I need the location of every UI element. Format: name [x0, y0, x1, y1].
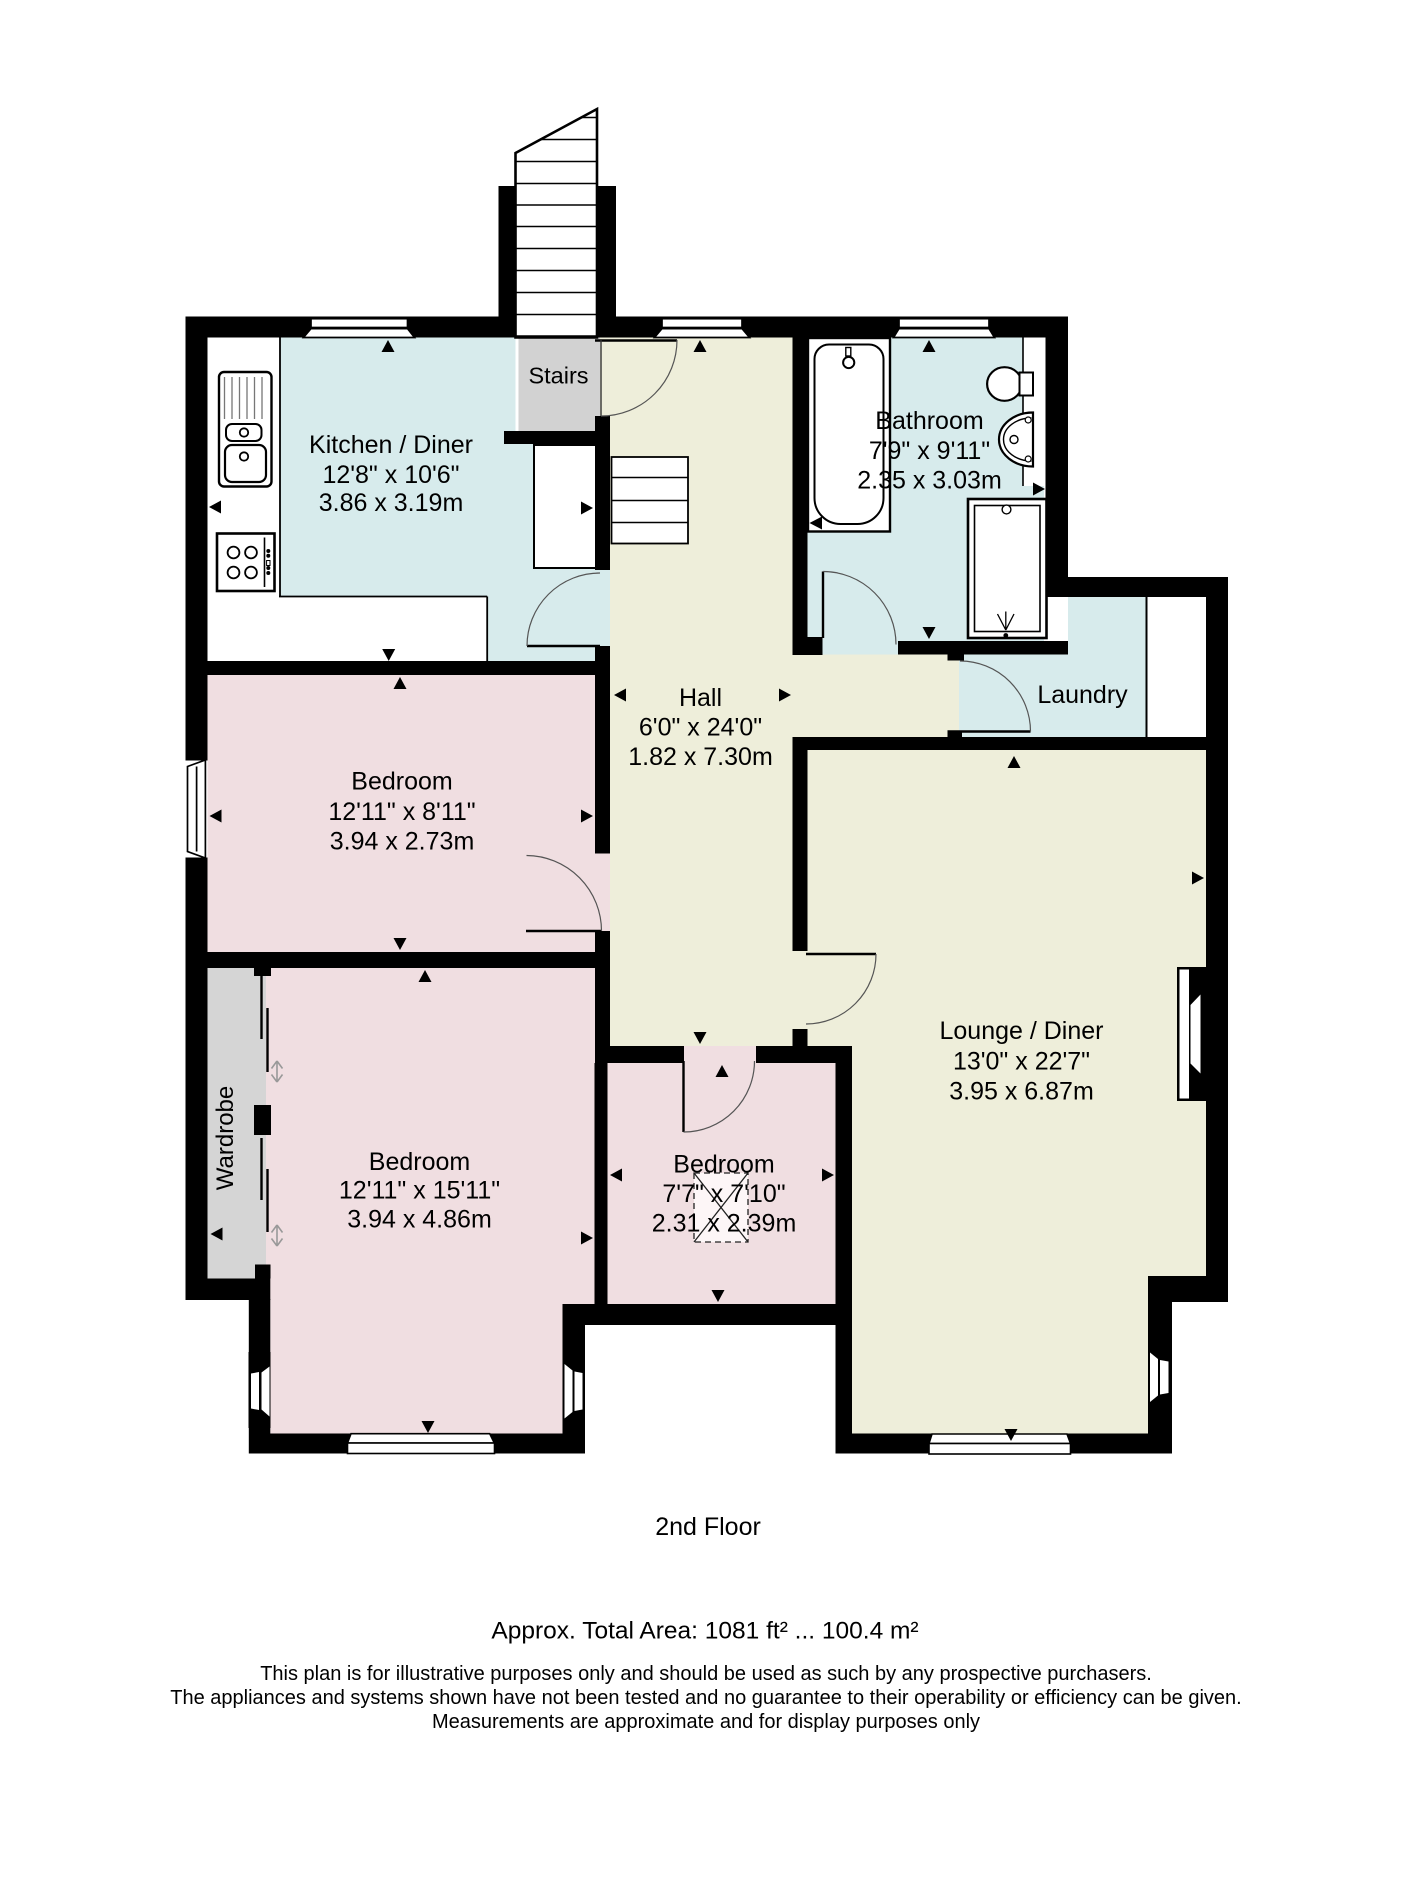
svg-text:Hall: Hall [679, 684, 722, 712]
svg-text:12'11" x 15'11": 12'11" x 15'11" [339, 1177, 500, 1205]
svg-text:12'11" x 8'11": 12'11" x 8'11" [328, 798, 475, 826]
svg-text:7'7" x 7'10": 7'7" x 7'10" [662, 1180, 785, 1208]
svg-text:Bedroom: Bedroom [369, 1148, 470, 1176]
svg-text:1.82 x 7.30m: 1.82 x 7.30m [628, 743, 773, 771]
svg-text:Bedroom: Bedroom [351, 768, 452, 796]
svg-text:7'9" x 9'11": 7'9" x 9'11" [869, 437, 990, 465]
svg-text:2nd Floor: 2nd Floor [655, 1513, 761, 1541]
svg-text:2.31 x 2.39m: 2.31 x 2.39m [652, 1210, 797, 1238]
svg-text:Wardrobe: Wardrobe [212, 1086, 239, 1190]
svg-text:3.95 x 6.87m: 3.95 x 6.87m [949, 1078, 1094, 1106]
svg-text:6'0" x 24'0": 6'0" x 24'0" [639, 714, 762, 742]
svg-text:This plan is for illustrative: This plan is for illustrative purposes o… [260, 1663, 1152, 1685]
svg-text:Laundry: Laundry [1037, 681, 1128, 709]
svg-text:Lounge / Diner: Lounge / Diner [939, 1017, 1103, 1045]
svg-text:Stairs: Stairs [528, 363, 588, 389]
svg-text:Bathroom: Bathroom [875, 407, 983, 435]
svg-text:12'8" x 10'6": 12'8" x 10'6" [322, 461, 459, 489]
svg-text:2.35 x 3.03m: 2.35 x 3.03m [857, 467, 1002, 495]
svg-text:Measurements are approximate a: Measurements are approximate and for dis… [432, 1711, 980, 1733]
svg-text:The appliances and systems sho: The appliances and systems shown have no… [170, 1687, 1241, 1709]
svg-text:Approx. Total Area: 1081 ft² .: Approx. Total Area: 1081 ft² ... 100.4 m… [491, 1618, 918, 1645]
svg-text:3.86 x 3.19m: 3.86 x 3.19m [319, 489, 464, 517]
svg-text:13'0" x 22'7": 13'0" x 22'7" [953, 1048, 1090, 1076]
svg-text:Bedroom: Bedroom [673, 1151, 774, 1179]
svg-text:Kitchen / Diner: Kitchen / Diner [309, 431, 473, 459]
svg-text:3.94 x 4.86m: 3.94 x 4.86m [347, 1206, 492, 1234]
svg-text:3.94 x 2.73m: 3.94 x 2.73m [330, 828, 475, 856]
